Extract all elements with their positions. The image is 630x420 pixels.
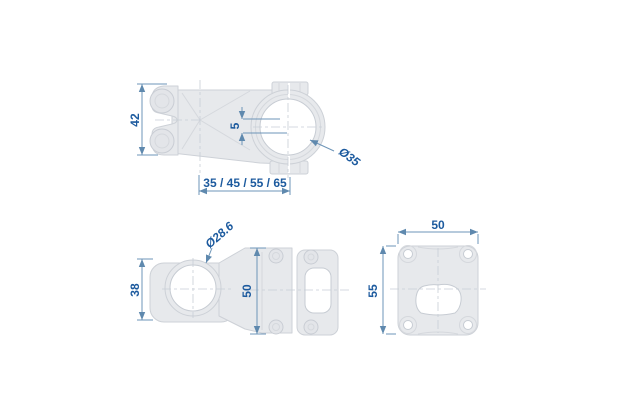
stem-technical-drawing: 42 5 Ø35 35 / 45 / 55 / 65	[0, 0, 630, 420]
side-view: 38 Ø28.6 50	[128, 219, 350, 335]
dim-bar-diameter-label: Ø35	[336, 144, 363, 169]
dim-55-extension-lines	[386, 246, 396, 334]
dim-steerer-diameter-label: Ø28.6	[202, 219, 236, 251]
side-bolt-boss-bottom	[269, 320, 283, 334]
technical-drawing-canvas: 42 5 Ø35 35 / 45 / 55 / 65	[0, 0, 630, 420]
clamp-bolt-boss-top-2	[150, 129, 174, 153]
dim-rise-label: 5	[228, 122, 242, 129]
dim-50f-extension-lines	[398, 234, 478, 244]
side-bolt-boss-top	[269, 249, 283, 263]
dim-plate-height-label: 55	[366, 284, 380, 298]
dim-stack-height-label: 42	[128, 113, 142, 127]
faceplate-window	[305, 268, 331, 313]
front-bolt-hole-tl	[404, 250, 413, 259]
front-bolt-hole-bl	[404, 321, 413, 330]
faceplate-bolt-bottom	[304, 320, 318, 334]
dim-clamp-height-label: 38	[128, 283, 142, 297]
front-bolt-hole-tr	[464, 250, 473, 259]
dim-front-height-label: 50	[240, 284, 254, 298]
dim-plate-width-label: 50	[431, 218, 445, 232]
front-view: 50 55	[366, 218, 486, 335]
clamp-bolt-boss-top-1	[150, 89, 174, 113]
faceplate-bolt-top	[304, 250, 318, 264]
top-view: 42 5 Ø35 35 / 45 / 55 / 65	[128, 80, 363, 195]
front-bolt-hole-br	[464, 321, 473, 330]
dim-extension-length-label: 35 / 45 / 55 / 65	[203, 176, 287, 190]
